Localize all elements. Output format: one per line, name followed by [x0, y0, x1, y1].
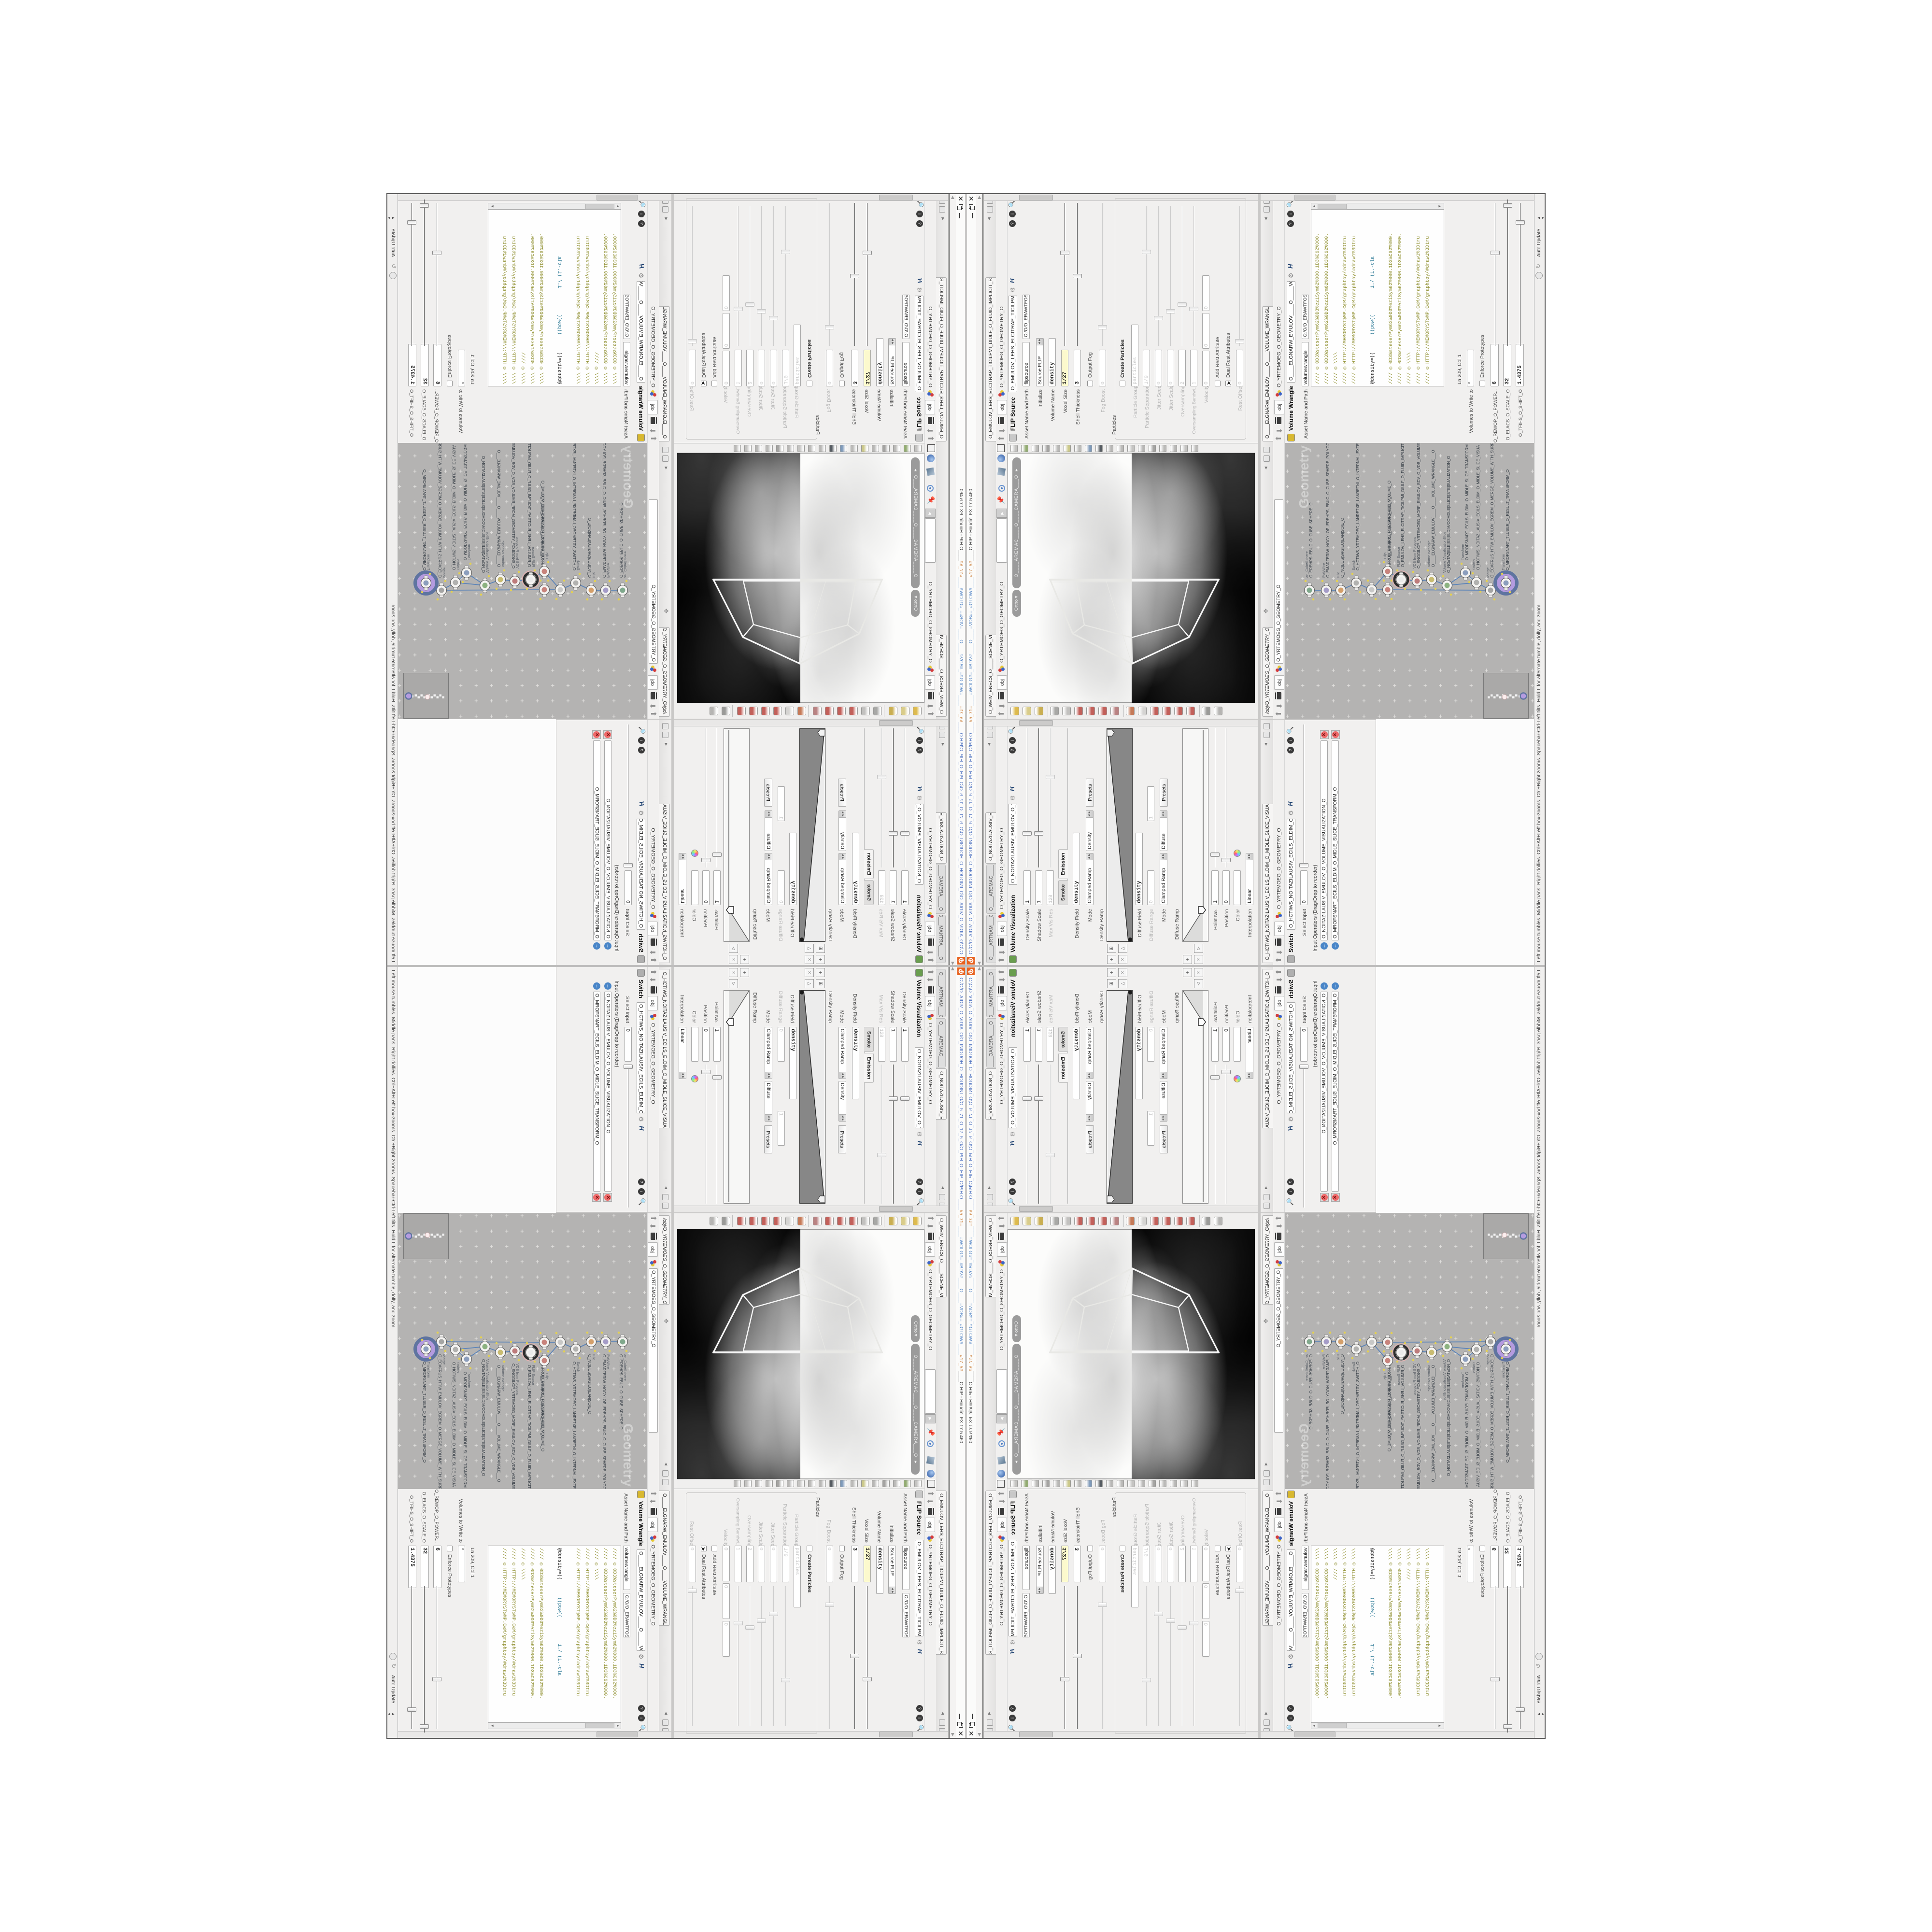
svg-text:File: File — [1336, 572, 1340, 578]
svg-text:Transform: Transform — [1461, 1372, 1465, 1388]
svg-text:O_HCTIWS_NOITAZILAUSIV_ECILS_E: O_HCTIWS_NOITAZILAUSIV_ECILS_ELDIM_O_MID… — [452, 1362, 456, 1487]
svg-text:O_EMULOV_LEHS_ELCITRAP_TICILPM: O_EMULOV_LEHS_ELCITRAP_TICILPMI_DIULF_O_… — [527, 1365, 531, 1489]
svg-text:Volume Wrangle: Volume Wrangle — [501, 540, 505, 567]
svg-text:Merge: Merge — [1486, 1354, 1490, 1364]
svg-text:Volume VisualizationSlice: Volume VisualizationSlice — [485, 532, 490, 573]
svg-text:Merge: Merge — [442, 568, 446, 578]
svg-text:Switch: Switch — [1351, 560, 1356, 570]
svg-text:VDB from Polygons: VDB from Polygons — [1412, 1364, 1417, 1395]
svg-text:Switch: Switch — [1351, 1362, 1356, 1372]
svg-text:Merge: Merge — [442, 1354, 446, 1364]
svg-text:O_MROFSNART_TLUSER_O_RESULT_TR: O_MROFSNART_TLUSER_O_RESULT_TRANSFORM_O — [1506, 1362, 1510, 1463]
svg-text:O_EMULOV_LEHS_ELCITRAP_TICILPM: O_EMULOV_LEHS_ELCITRAP_TICILPMI_DIULF_O_… — [527, 443, 531, 567]
svg-text:Clip: Clip — [545, 553, 549, 559]
svg-text:Switch: Switch — [1472, 559, 1476, 570]
svg-text:O____ELGNARW_EMULOV____O____VO: O____ELGNARW_EMULOV____O____VOLUME_WRANG… — [497, 450, 501, 567]
svg-text:Clip: Clip — [1383, 553, 1387, 559]
svg-text:O_ECAFRUS_HTIW_EMULOV_EGREM_O_: O_ECAFRUS_HTIW_EMULOV_EGREM_O_MERGE_VOLU… — [1490, 443, 1494, 578]
svg-text:FLIP Source: FLIP Source — [1396, 1365, 1401, 1385]
svg-text:an_CubeSphere: an_CubeSphere — [623, 1354, 627, 1381]
svg-text:O_MROFSNART_ECILS_ELDIM_O_MIDL: O_MROFSNART_ECILS_ELDIM_O_MIDLE_SLICE_TR… — [1465, 443, 1469, 560]
svg-text:an_CubeSphere: an_CubeSphere — [1305, 551, 1309, 578]
svg-text:Volume VisualizationSlice: Volume VisualizationSlice — [1442, 1359, 1447, 1400]
svg-text:O_EMARFERIW_NOGYLOP_EREHPS_EBU: O_EMARFERIW_NOGYLOP_EREHPS_EBUC_O_CUBE_S… — [1326, 1354, 1330, 1489]
svg-text:PolyWire: PolyWire — [1321, 1354, 1326, 1369]
svg-text:Transform: Transform — [467, 544, 471, 560]
svg-text:an_CubeSphere: an_CubeSphere — [623, 551, 627, 578]
svg-text:FLIP Source: FLIP Source — [1396, 547, 1401, 567]
svg-text:O_MROFSNART_ECILS_ELDIM_O_MIDL: O_MROFSNART_ECILS_ELDIM_O_MIDLE_SLICE_TR… — [463, 443, 467, 560]
svg-text:PolyWire: PolyWire — [606, 1354, 611, 1369]
svg-text:O_ECAFRUS_PILC|SUR|FACE_VOLUME: O_ECAFRUS_PILC|SUR|FACE_VOLUME_O — [540, 481, 545, 559]
svg-text:Merge: Merge — [1486, 568, 1490, 578]
svg-text:O_HCTIWS_NOITAZILAUSIV_ECILS_E: O_HCTIWS_NOITAZILAUSIV_ECILS_ELDIM_O_MID… — [452, 445, 456, 570]
svg-text:O_NC|BUS|SRG|EO|EAN|SO|E_O: O_NC|BUS|SRG|EO|EAN|SO|E_O — [587, 518, 592, 578]
svg-text:O_MROFSNART_TLUSER_O_RESULT_TR: O_MROFSNART_TLUSER_O_RESULT_TRANSFORM_O — [1506, 469, 1510, 570]
svg-text:Clip: Clip — [545, 1373, 549, 1379]
svg-text:O_HCTIWS_YRTEMOEG_LANRETXE_LAN: O_HCTIWS_YRTEMOEG_LANRETXE_LANRETNI_O_IN… — [1356, 1362, 1360, 1489]
svg-text:Volume Wrangle: Volume Wrangle — [1427, 1365, 1431, 1392]
svg-text:File: File — [1336, 1354, 1340, 1360]
svg-text:O_ECAFRUS_PILC|SUR|FACE_VOLUME: O_ECAFRUS_PILC|SUR|FACE_VOLUME_O — [540, 1373, 545, 1451]
svg-text:Volume Wrangle: Volume Wrangle — [1427, 540, 1431, 567]
svg-text:O_NO#TAZ|BLE|SS|ELD|M/COMDLE|S: O_NO#TAZ|BLE|SS|ELD|M/COMDLE|SLICE|STE|S… — [481, 1359, 485, 1476]
svg-text:FLIP Source: FLIP Source — [531, 1365, 536, 1385]
svg-text:File: File — [592, 572, 596, 578]
svg-text:an_CubeSphere: an_CubeSphere — [1305, 1354, 1309, 1381]
svg-text:O_EMULOV_LEHS_ELCITRAP_TICILPM: O_EMULOV_LEHS_ELCITRAP_TICILPMI_DIULF_O_… — [1401, 1365, 1405, 1489]
svg-text:PolyWire: PolyWire — [606, 563, 611, 578]
svg-text:O_ECAFRUS_HTIW_EMULOV_EGREM_O_: O_ECAFRUS_HTIW_EMULOV_EGREM_O_MERGE_VOLU… — [438, 443, 442, 578]
svg-text:O_EREHPS_EBUC_O_CUBE_SPHERE_O: O_EREHPS_EBUC_O_CUBE_SPHERE_O — [619, 1354, 623, 1430]
svg-text:O_EMARFERIW_NOGYLOP_EREHPS_EBU: O_EMARFERIW_NOGYLOP_EREHPS_EBUC_O_CUBE_S… — [1326, 443, 1330, 578]
svg-text:O_ECAFRUS_PILC|SUR|FACE_VOLUME: O_ECAFRUS_PILC|SUR|FACE_VOLUME_O — [1387, 1373, 1392, 1451]
svg-text:Switch: Switch — [1472, 1362, 1476, 1373]
svg-text:O_NO#TAZ|BLE|SS|ELD|M/COMDLE|S: O_NO#TAZ|BLE|SS|ELD|M/COMDLE|SLICE|STE|S… — [1447, 456, 1451, 573]
svg-text:O_ECAFRUS_HTIW_EMULOV_EGREM_O_: O_ECAFRUS_HTIW_EMULOV_EGREM_O_MERGE_VOLU… — [438, 1354, 442, 1489]
svg-text:O_ECAFRUS_PILC|SUR|FACE_VOLUME: O_ECAFRUS_PILC|SUR|FACE_VOLUME_O — [1387, 481, 1392, 559]
svg-text:O_MROFSNART_ECILS_ELDIM_O_MIDL: O_MROFSNART_ECILS_ELDIM_O_MIDLE_SLICE_TR… — [463, 1372, 467, 1489]
svg-text:O_SNOGILOP_YRTEMOEG_MORF_EMULO: O_SNOGILOP_YRTEMOEG_MORF_EMULOV_BDV_O_VD… — [1417, 1364, 1421, 1489]
svg-text:O_NC|BUS|SRG|EO|EAN|SO|E_O: O_NC|BUS|SRG|EO|EAN|SO|E_O — [587, 1354, 592, 1414]
svg-text:Transform: Transform — [426, 1362, 431, 1378]
svg-text:O_HCTIWS_YRTEMOEG_LANRETXE_LAN: O_HCTIWS_YRTEMOEG_LANRETXE_LANRETNI_O_IN… — [1356, 443, 1360, 570]
svg-text:O_MROFSNART_TLUSER_O_RESULT_TR: O_MROFSNART_TLUSER_O_RESULT_TRANSFORM_O — [422, 469, 426, 570]
svg-text:O_NC|BUS|SRG|EO|EAN|SO|E_O: O_NC|BUS|SRG|EO|EAN|SO|E_O — [1340, 518, 1345, 578]
svg-text:Transform: Transform — [426, 554, 431, 570]
svg-text:Switch: Switch — [456, 1362, 460, 1373]
svg-text:O____ELGNARW_EMULOV____O____VO: O____ELGNARW_EMULOV____O____VOLUME_WRANG… — [1431, 1365, 1435, 1482]
svg-text:Switch: Switch — [576, 1362, 581, 1372]
svg-text:File: File — [592, 1354, 596, 1360]
svg-text:Transform: Transform — [1461, 544, 1465, 560]
svg-text:Transform: Transform — [1501, 554, 1506, 570]
svg-text:Volume Wrangle: Volume Wrangle — [501, 1365, 505, 1392]
svg-text:PolyWire: PolyWire — [1321, 563, 1326, 578]
svg-text:O_EREHPS_EBUC_O_CUBE_SPHERE_O: O_EREHPS_EBUC_O_CUBE_SPHERE_O — [1309, 1354, 1313, 1430]
svg-text:O_EMARFERIW_NOGYLOP_EREHPS_EBU: O_EMARFERIW_NOGYLOP_EREHPS_EBUC_O_CUBE_S… — [602, 1354, 606, 1489]
svg-text:Transform: Transform — [467, 1372, 471, 1388]
svg-text:VDB from Polygons: VDB from Polygons — [515, 1364, 520, 1395]
svg-text:O_SNOGILOP_YRTEMOEG_MORF_EMULO: O_SNOGILOP_YRTEMOEG_MORF_EMULOV_BDV_O_VD… — [511, 1364, 515, 1489]
svg-text:O_MROFSNART_ECILS_ELDIM_O_MIDL: O_MROFSNART_ECILS_ELDIM_O_MIDLE_SLICE_TR… — [1465, 1372, 1469, 1489]
svg-text:O_MROFSNART_TLUSER_O_RESULT_TR: O_MROFSNART_TLUSER_O_RESULT_TRANSFORM_O — [422, 1362, 426, 1463]
svg-text:Clip: Clip — [1383, 1373, 1387, 1379]
svg-text:O_EMARFERIW_NOGYLOP_EREHPS_EBU: O_EMARFERIW_NOGYLOP_EREHPS_EBUC_O_CUBE_S… — [602, 443, 606, 578]
svg-text:O_SNOGILOP_YRTEMOEG_MORF_EMULO: O_SNOGILOP_YRTEMOEG_MORF_EMULOV_BDV_O_VD… — [511, 443, 515, 568]
svg-text:O_SNOGILOP_YRTEMOEG_MORF_EMULO: O_SNOGILOP_YRTEMOEG_MORF_EMULOV_BDV_O_VD… — [1417, 443, 1421, 568]
svg-text:O_EREHPS_EBUC_O_CUBE_SPHERE_O: O_EREHPS_EBUC_O_CUBE_SPHERE_O — [619, 502, 623, 578]
svg-text:O_HCTIWS_YRTEMOEG_LANRETXE_LAN: O_HCTIWS_YRTEMOEG_LANRETXE_LANRETNI_O_IN… — [572, 1362, 576, 1489]
svg-text:O_HCTIWS_NOITAZILAUSIV_ECILS_E: O_HCTIWS_NOITAZILAUSIV_ECILS_ELDIM_O_MID… — [1476, 445, 1480, 570]
svg-text:FLIP Source: FLIP Source — [531, 547, 536, 567]
svg-text:O_HCTIWS_YRTEMOEG_LANRETXE_LAN: O_HCTIWS_YRTEMOEG_LANRETXE_LANRETNI_O_IN… — [572, 443, 576, 570]
svg-text:O____ELGNARW_EMULOV____O____VO: O____ELGNARW_EMULOV____O____VOLUME_WRANG… — [497, 1365, 501, 1482]
svg-text:O_EMULOV_LEHS_ELCITRAP_TICILPM: O_EMULOV_LEHS_ELCITRAP_TICILPMI_DIULF_O_… — [1401, 443, 1405, 567]
svg-text:Volume VisualizationSlice: Volume VisualizationSlice — [485, 1359, 490, 1400]
svg-text:VDB from Polygons: VDB from Polygons — [1412, 537, 1417, 568]
svg-text:Switch: Switch — [456, 559, 460, 570]
svg-text:O_NC|BUS|SRG|EO|EAN|SO|E_O: O_NC|BUS|SRG|EO|EAN|SO|E_O — [1340, 1354, 1345, 1414]
svg-text:O_NO#TAZ|BLE|SS|ELD|M/COMDLE|S: O_NO#TAZ|BLE|SS|ELD|M/COMDLE|SLICE|STE|S… — [1447, 1359, 1451, 1476]
svg-text:Volume VisualizationSlice: Volume VisualizationSlice — [1442, 532, 1447, 573]
svg-text:O_EREHPS_EBUC_O_CUBE_SPHERE_O: O_EREHPS_EBUC_O_CUBE_SPHERE_O — [1309, 502, 1313, 578]
svg-text:VDB from Polygons: VDB from Polygons — [515, 537, 520, 568]
svg-text:Switch: Switch — [576, 560, 581, 570]
svg-text:O_HCTIWS_NOITAZILAUSIV_ECILS_E: O_HCTIWS_NOITAZILAUSIV_ECILS_ELDIM_O_MID… — [1476, 1362, 1480, 1487]
svg-text:Transform: Transform — [1501, 1362, 1506, 1378]
svg-text:O_ECAFRUS_HTIW_EMULOV_EGREM_O_: O_ECAFRUS_HTIW_EMULOV_EGREM_O_MERGE_VOLU… — [1490, 1354, 1494, 1489]
svg-text:O_NO#TAZ|BLE|SS|ELD|M/COMDLE|S: O_NO#TAZ|BLE|SS|ELD|M/COMDLE|SLICE|STE|S… — [481, 456, 485, 573]
svg-text:O____ELGNARW_EMULOV____O____VO: O____ELGNARW_EMULOV____O____VOLUME_WRANG… — [1431, 450, 1435, 567]
